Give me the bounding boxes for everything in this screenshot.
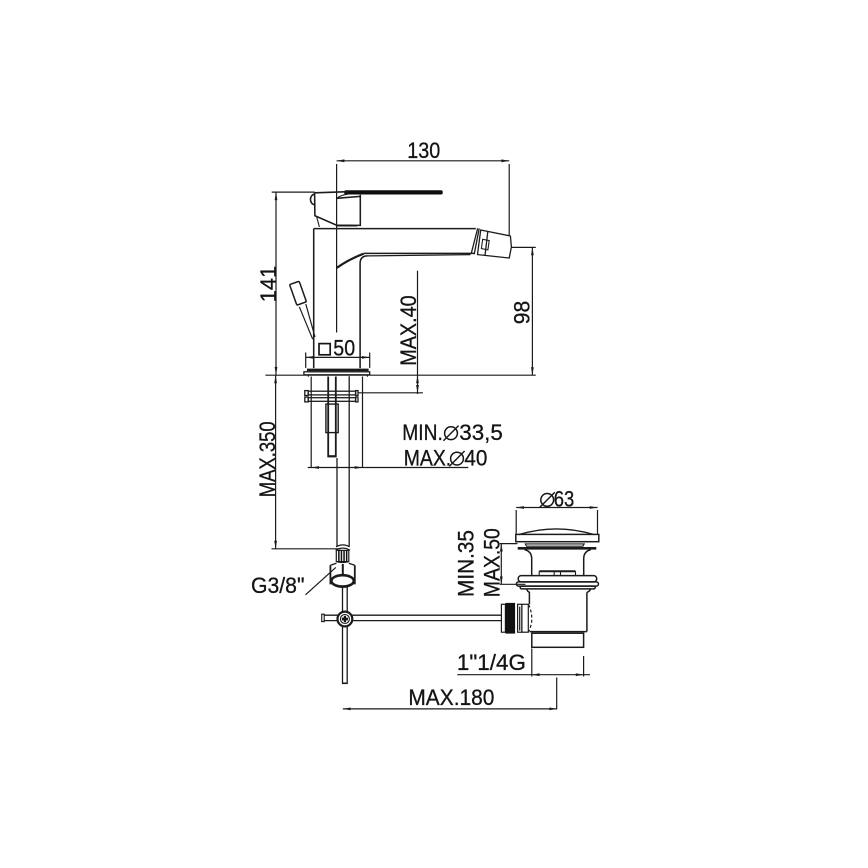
svg-text:MAX.: MAX. xyxy=(404,445,452,470)
svg-text:1"1/4G: 1"1/4G xyxy=(457,650,526,675)
svg-text:MIN.35: MIN.35 xyxy=(453,530,478,597)
svg-text:MAX.40: MAX.40 xyxy=(396,295,421,366)
svg-text:63: 63 xyxy=(554,487,575,512)
svg-text:MIN.: MIN. xyxy=(402,420,443,445)
svg-text:33,5: 33,5 xyxy=(459,420,503,445)
svg-text:MAX.50: MAX.50 xyxy=(480,528,505,597)
svg-text:98: 98 xyxy=(510,301,535,325)
svg-text:40: 40 xyxy=(464,445,487,470)
svg-text:50: 50 xyxy=(333,335,355,360)
svg-text:MAX.350: MAX.350 xyxy=(255,421,280,497)
svg-text:141: 141 xyxy=(256,266,281,303)
svg-text:MAX.180: MAX.180 xyxy=(408,685,494,710)
svg-text:130: 130 xyxy=(407,138,440,163)
svg-text:G3/8": G3/8" xyxy=(251,573,305,598)
